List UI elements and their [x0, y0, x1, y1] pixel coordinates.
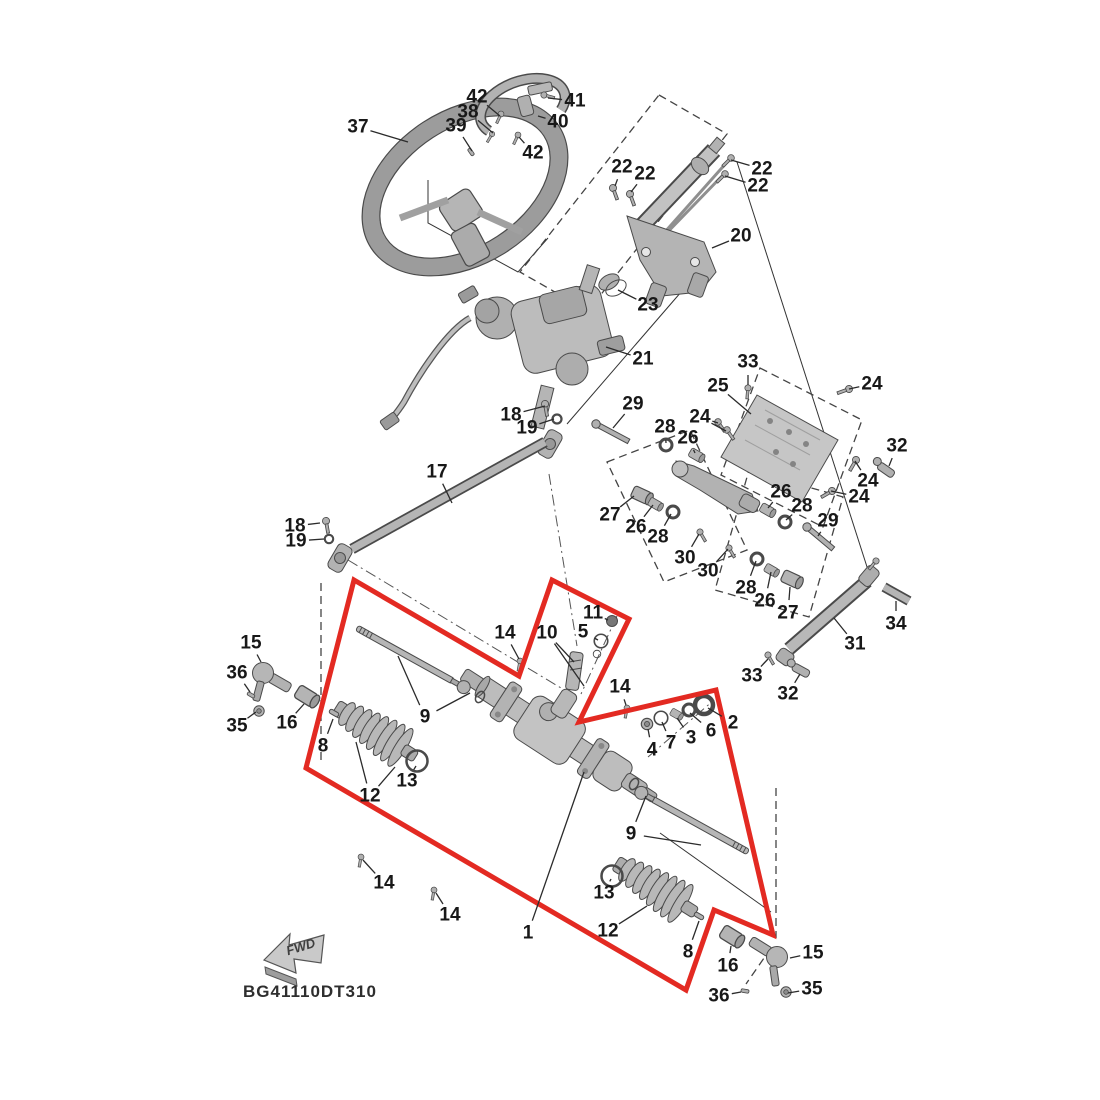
- plate-hole: [786, 429, 792, 435]
- part-label-22: 22: [611, 157, 632, 178]
- leader-line-37: [370, 131, 408, 142]
- part-label-24: 24: [861, 374, 883, 395]
- torque-sensor: [556, 353, 588, 385]
- part-label-40: 40: [547, 112, 568, 133]
- ball-joint-15-left: [253, 663, 274, 684]
- part-label-30: 30: [674, 548, 695, 569]
- ring-2: [695, 696, 713, 714]
- bolt-29a: [590, 418, 630, 445]
- part-label-33: 33: [741, 666, 762, 687]
- plate-hole: [773, 449, 779, 455]
- diagram-canvas: FWD BG41110DT310 37423839414042222222222…: [0, 0, 1100, 1100]
- part-label-32: 32: [886, 436, 907, 457]
- part-label-34: 34: [885, 614, 907, 635]
- cotter-pin-36-right: [741, 989, 749, 994]
- leader-line-19: [309, 539, 324, 540]
- leader-line-14: [624, 699, 626, 705]
- leader-line-23: [618, 290, 636, 299]
- leader-line-9: [644, 836, 701, 845]
- leader-line-26: [644, 505, 653, 517]
- bolt-22a: [608, 183, 620, 200]
- leader-line-12: [619, 906, 647, 924]
- part-label-4: 4: [647, 740, 658, 761]
- part-label-29: 29: [817, 511, 838, 532]
- part-label-5: 5: [578, 622, 589, 643]
- tie-rod-end-left: [247, 663, 293, 717]
- washer-11: [607, 616, 618, 627]
- part-label-37: 37: [347, 117, 368, 138]
- leader-line-8: [328, 719, 333, 734]
- part-label-33: 33: [737, 352, 758, 373]
- part-label-13: 13: [396, 771, 417, 792]
- bush-26d: [763, 563, 780, 578]
- part-label-35: 35: [801, 979, 823, 1000]
- leader-line-22: [731, 160, 750, 165]
- inner-tie-rod-left-9: [354, 622, 473, 696]
- leader-line-32: [889, 458, 892, 466]
- bolt-33a: [744, 385, 751, 400]
- part-label-19: 19: [285, 531, 306, 552]
- part-label-31: 31: [844, 634, 866, 655]
- bracket-hole-2: [691, 258, 700, 267]
- leader-line-30: [692, 534, 699, 547]
- nut-35-right: [781, 987, 791, 997]
- part-label-26: 26: [677, 428, 698, 449]
- pinion-centerline: [549, 474, 577, 646]
- part-label-29: 29: [622, 394, 643, 415]
- motor-connector: [458, 285, 479, 304]
- ring-28d: [751, 553, 763, 565]
- part-label-28: 28: [735, 578, 756, 599]
- plate-hole: [790, 461, 796, 467]
- drawing-code: BG41110DT310: [243, 982, 377, 1001]
- leader-line-31: [834, 618, 847, 634]
- leader-line-14: [363, 860, 375, 873]
- part-label-22: 22: [747, 176, 768, 197]
- washer-19b: [325, 535, 333, 543]
- part-label-28: 28: [647, 527, 668, 548]
- part-label-6: 6: [706, 721, 717, 742]
- part-label-24: 24: [689, 407, 711, 428]
- leader-line-13: [610, 879, 611, 881]
- nut-35-left: [254, 706, 264, 716]
- part-label-8: 8: [683, 942, 694, 963]
- part-label-22: 22: [634, 164, 655, 185]
- part-label-20: 20: [730, 226, 751, 247]
- part-label-24: 24: [848, 487, 870, 508]
- leader-line-14: [436, 893, 443, 904]
- leader-line-8: [692, 921, 699, 940]
- part-label-26: 26: [625, 517, 646, 538]
- part-label-12: 12: [359, 786, 380, 807]
- rod-16-left: [293, 684, 321, 709]
- bolt-24d: [820, 486, 837, 500]
- part-label-25: 25: [707, 376, 729, 397]
- bracket-hole-1: [642, 248, 651, 257]
- nut-4: [641, 718, 652, 729]
- part-label-36: 36: [226, 663, 247, 684]
- leader-line-14: [511, 644, 519, 659]
- leader-line-9: [436, 693, 470, 711]
- rod-16-right: [718, 924, 746, 949]
- rack-end-centerline: [648, 700, 714, 757]
- boot-12-left: [324, 688, 427, 775]
- leader-line-12: [378, 767, 395, 786]
- leader-line-22: [615, 179, 618, 186]
- part-label-15: 15: [802, 943, 824, 964]
- leader-line-22: [631, 184, 637, 192]
- fwd-arrow: FWD: [264, 934, 324, 986]
- leader-line-1: [532, 772, 584, 921]
- ring-28c: [667, 506, 679, 518]
- boot-12-right: [604, 844, 707, 931]
- part-label-9: 9: [626, 824, 637, 845]
- bush-26b: [759, 503, 778, 519]
- bolt-24b: [836, 384, 853, 396]
- stud-left: [253, 681, 265, 702]
- leader-line-18: [308, 523, 320, 524]
- ball-joint-15-right: [767, 947, 788, 968]
- leader-line-35: [247, 712, 256, 718]
- leader-line-9: [636, 796, 646, 822]
- bush-26a: [688, 448, 707, 464]
- part-label-1: 1: [523, 923, 534, 944]
- part-label-26: 26: [754, 591, 775, 612]
- part-label-14: 14: [609, 677, 631, 698]
- construction-lines: [321, 95, 868, 984]
- part-label-3: 3: [686, 728, 697, 749]
- leader-line-20: [712, 241, 729, 248]
- part-label-32: 32: [777, 684, 798, 705]
- part-label-27: 27: [777, 603, 798, 624]
- callout-layer: 3742383941404222222222202321181929282624…: [226, 87, 907, 1007]
- part-label-8: 8: [318, 736, 329, 757]
- part-label-10: 10: [536, 623, 557, 644]
- leader-line-27: [789, 587, 790, 600]
- part-label-16: 16: [717, 956, 738, 977]
- leader-line-29: [613, 414, 625, 428]
- part-label-9: 9: [420, 707, 431, 728]
- leader-line-32: [795, 674, 800, 683]
- part-label-23: 23: [637, 295, 658, 316]
- lower-u-joint: [326, 542, 354, 574]
- wire-harness: [389, 318, 470, 422]
- part-label-16: 16: [276, 713, 297, 734]
- plate-hole: [803, 441, 809, 447]
- part-label-26: 26: [770, 482, 791, 503]
- pin-8-right: [694, 912, 705, 921]
- part-label-14: 14: [494, 623, 516, 644]
- eps-motor-cap: [475, 299, 499, 323]
- part-label-11: 11: [583, 603, 604, 624]
- part-label-13: 13: [593, 883, 614, 904]
- stud-right: [770, 966, 780, 987]
- bolt-33b: [764, 651, 776, 666]
- part-label-7: 7: [666, 733, 677, 754]
- part-label-42: 42: [522, 143, 543, 164]
- part-label-14: 14: [439, 905, 461, 926]
- part-label-41: 41: [564, 91, 586, 112]
- part-label-19: 19: [516, 418, 537, 439]
- leader-line-16: [730, 946, 731, 953]
- parts-diagram: FWD BG41110DT310 37423839414042222222222…: [0, 0, 1100, 1100]
- part-label-28: 28: [791, 496, 812, 517]
- oring-7: [654, 711, 668, 725]
- wheel-hub: [437, 187, 485, 233]
- leader-line-15: [790, 956, 800, 958]
- part-label-21: 21: [632, 349, 654, 370]
- leader-line-36: [732, 992, 741, 994]
- horn-bolt-41: [540, 91, 555, 101]
- plate-hole: [767, 418, 773, 424]
- leader-line-39: [463, 137, 472, 151]
- part-label-17: 17: [426, 462, 447, 483]
- part-label-2: 2: [728, 713, 739, 734]
- leader-line-13: [414, 766, 416, 770]
- ring-small: [593, 650, 601, 658]
- part-label-36: 36: [708, 986, 729, 1007]
- leader-line-4: [648, 729, 650, 737]
- part-label-14: 14: [373, 873, 395, 894]
- tie-rod-end-right: [741, 936, 791, 997]
- part-label-39: 39: [445, 116, 466, 137]
- rod-end-32b: [785, 658, 812, 679]
- part-label-12: 12: [597, 921, 618, 942]
- relay-arm-assembly: [590, 384, 861, 590]
- part-label-28: 28: [654, 417, 675, 438]
- leader-line-15: [257, 655, 261, 662]
- relay-arm-eye: [672, 461, 688, 477]
- part-label-30: 30: [697, 561, 718, 582]
- leader-line-36: [244, 684, 250, 692]
- leader-line-12: [356, 742, 367, 783]
- collar-27b: [780, 569, 805, 590]
- part-label-15: 15: [240, 633, 262, 654]
- bolt-18b: [322, 517, 332, 534]
- inner-tie-rod-right-9: [632, 784, 751, 858]
- part-label-27: 27: [599, 505, 620, 526]
- part-label-35: 35: [226, 716, 248, 737]
